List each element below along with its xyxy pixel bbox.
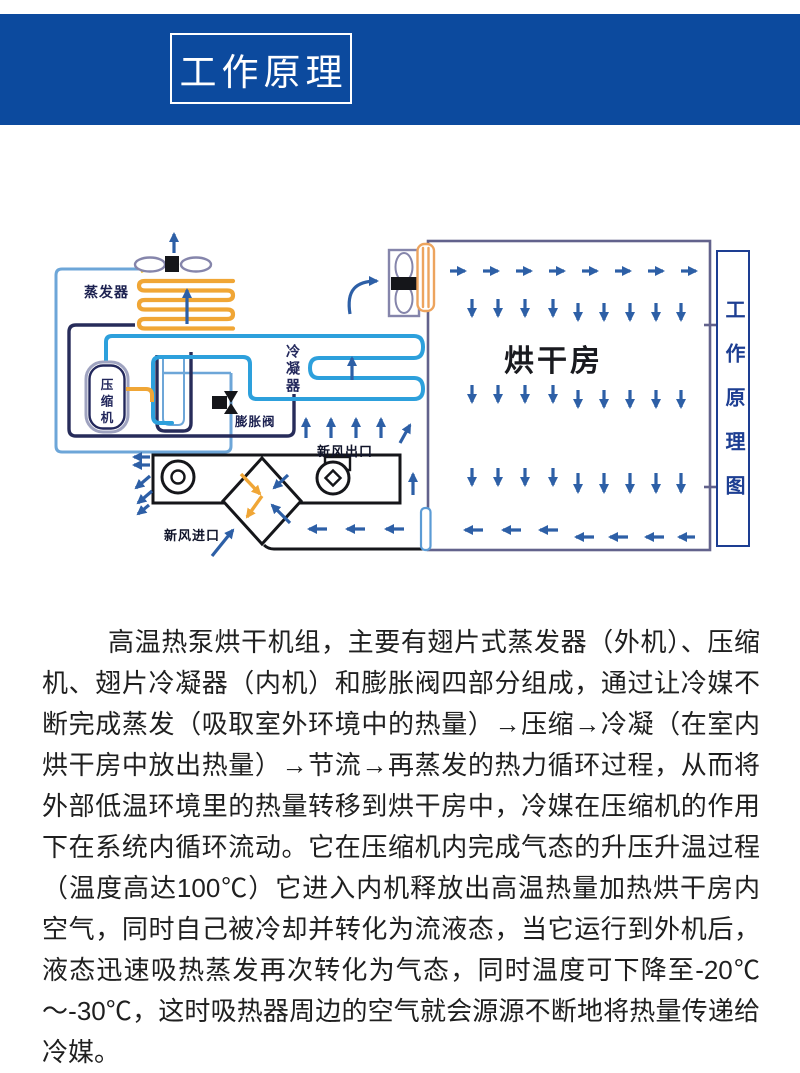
body-paragraph: 高温热泵烘干机组，主要有翅片式蒸发器（外机）、压缩机、翅片冷凝器（内机）和膨胀阀… xyxy=(42,622,760,1073)
indoor-fan-unit xyxy=(349,244,434,316)
side-caption: 工作原理图 xyxy=(723,279,743,519)
fresh-air-inlet-label: 新风进口 xyxy=(164,525,220,544)
compressor-discharge-pipe xyxy=(126,389,152,402)
fan-blade xyxy=(396,253,413,281)
condenser-label: 冷凝器 xyxy=(286,344,300,395)
side-caption-box: 工作原理图 xyxy=(716,250,750,547)
fan-hub xyxy=(391,277,417,290)
evaporator-coil xyxy=(139,281,233,329)
fan-hub xyxy=(165,256,179,272)
compressor-label: 压缩机 xyxy=(99,378,112,428)
fresh-air-outlet-label: 新风出口 xyxy=(317,441,373,460)
u-tube-inner-pipe xyxy=(163,355,184,425)
exhaust-out-arrows xyxy=(134,457,152,514)
indoor-coil xyxy=(418,244,435,311)
airflow-curved-arrow xyxy=(349,281,377,314)
outdoor-fan xyxy=(135,234,211,272)
condenser-circuit xyxy=(106,336,423,423)
fan-blade xyxy=(135,258,165,272)
expansion-valve-label: 膨胀阀 xyxy=(235,411,276,430)
damper-bar xyxy=(421,508,431,550)
condenser-coil xyxy=(106,336,423,423)
page: { "header": { "title": "工作原理" }, "diagra… xyxy=(0,0,800,1041)
drying-room-label: 烘干房 xyxy=(504,336,603,380)
fan-blade xyxy=(181,258,211,272)
evaporator-label: 蒸发器 xyxy=(84,282,129,302)
refrigerant-pipe-light xyxy=(56,268,231,452)
return-duct-line xyxy=(264,545,426,549)
